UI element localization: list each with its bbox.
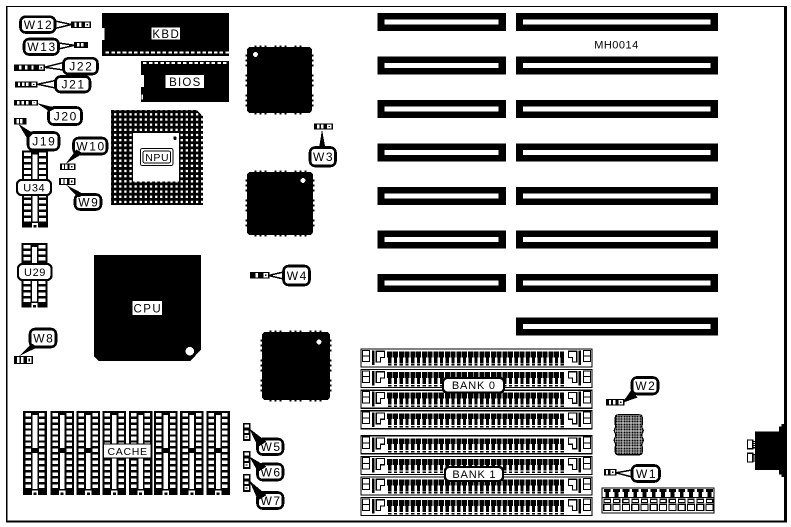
svg-text:J22: J22 [69,59,93,73]
svg-text:NPU: NPU [145,152,169,164]
svg-text:KBD: KBD [152,29,180,41]
svg-text:U29: U29 [24,267,46,279]
svg-text:W2: W2 [635,379,656,393]
svg-text:CPU: CPU [134,303,162,315]
svg-text:W3: W3 [313,150,334,164]
svg-text:W9: W9 [78,195,99,209]
svg-text:W8: W8 [33,331,54,345]
svg-text:U34: U34 [23,182,45,194]
svg-text:J21: J21 [61,78,85,92]
svg-text:W10: W10 [76,139,105,153]
svg-text:BANK 1: BANK 1 [452,469,496,481]
svg-text:W13: W13 [27,40,56,54]
svg-text:W12: W12 [24,18,53,32]
svg-text:W4: W4 [287,269,308,283]
svg-text:J20: J20 [54,109,78,123]
svg-text:CACHE: CACHE [107,446,147,458]
svg-text:BANK 0: BANK 0 [452,380,496,392]
svg-text:W1: W1 [636,467,657,481]
svg-text:BIOS: BIOS [169,77,201,89]
svg-text:MH0014: MH0014 [594,39,639,51]
svg-text:J19: J19 [32,135,56,149]
